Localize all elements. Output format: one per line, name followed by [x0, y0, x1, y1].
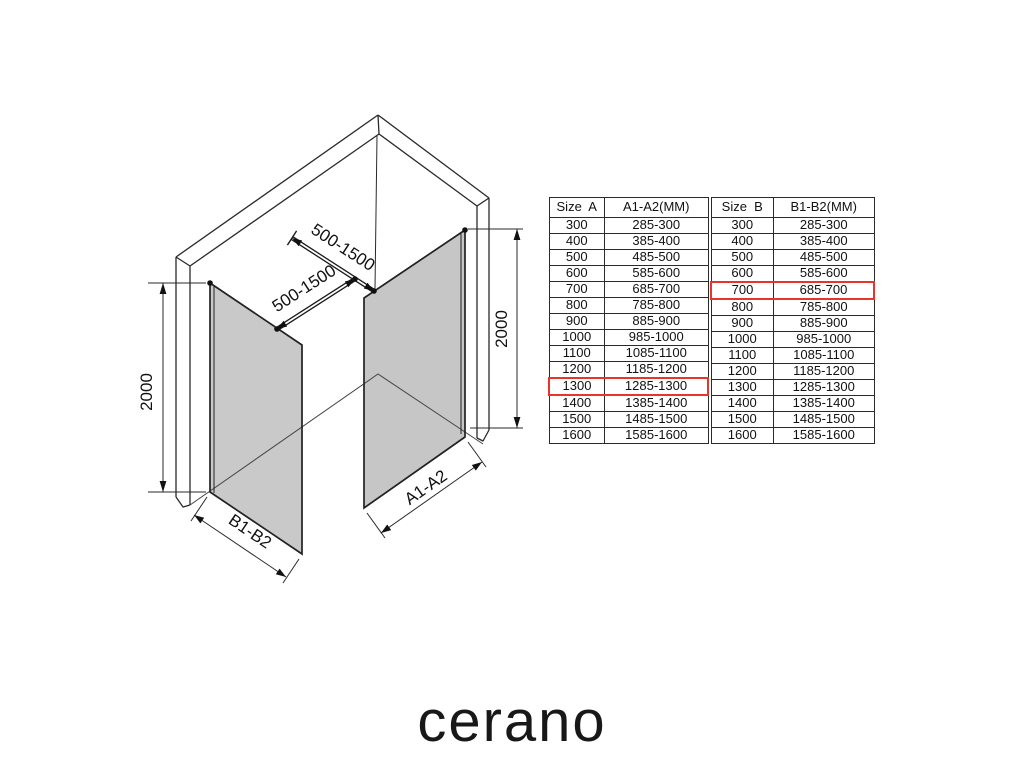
table-cell: 300	[711, 218, 774, 234]
brand-logo: cerano	[0, 688, 1024, 755]
table-row: 700685-700	[549, 282, 708, 298]
table-cell: 685-700	[605, 282, 709, 298]
table-cell: 885-900	[774, 316, 875, 332]
table-cell: 1485-1500	[774, 412, 875, 428]
table-cell: 285-300	[774, 218, 875, 234]
table-cell: 1500	[711, 412, 774, 428]
table-cell: 785-800	[605, 298, 709, 314]
table-row: 14001385-1400	[711, 396, 874, 412]
column-header: B1-B2(MM)	[774, 198, 875, 218]
table-cell: 1085-1100	[605, 346, 709, 362]
table-cell: 400	[711, 234, 774, 250]
table-row: 12001185-1200	[711, 364, 874, 380]
table-row: 400385-400	[549, 234, 708, 250]
table-cell: 800	[549, 298, 605, 314]
table-row: 900885-900	[711, 316, 874, 332]
table-cell: 385-400	[605, 234, 709, 250]
table-cell: 985-1000	[774, 332, 875, 348]
table-cell: 300	[549, 218, 605, 234]
table-cell: 585-600	[605, 266, 709, 282]
table-cell: 1600	[711, 428, 774, 444]
table-cell: 1285-1300	[605, 378, 709, 395]
table-cell: 600	[711, 266, 774, 283]
size-a-table: Size AA1-A2(MM)300285-300400385-40050048…	[548, 197, 709, 444]
table-cell: 400	[549, 234, 605, 250]
table-cell: 1300	[711, 380, 774, 396]
table-cell: 1600	[549, 428, 605, 444]
table-row: 11001085-1100	[549, 346, 708, 362]
table-row: 300285-300	[711, 218, 874, 234]
table-row: 12001185-1200	[549, 362, 708, 379]
table-cell: 1300	[549, 378, 605, 395]
column-header: Size A	[549, 198, 605, 218]
table-cell: 785-800	[774, 299, 875, 316]
table-row: 13001285-1300	[711, 380, 874, 396]
table-row: 14001385-1400	[549, 395, 708, 412]
table-row-highlighted: 700685-700	[711, 282, 874, 299]
glass-panel-a	[364, 230, 465, 508]
table-cell: 1485-1500	[605, 412, 709, 428]
table-cell: 1100	[711, 348, 774, 364]
height-label-left: 2000	[137, 373, 156, 411]
bar-b-length-label: 500-1500	[269, 261, 340, 316]
header-row: Size BB1-B2(MM)	[711, 198, 874, 218]
table-row: 16001585-1600	[711, 428, 874, 444]
table-row: 1000985-1000	[711, 332, 874, 348]
glass-panels	[210, 230, 465, 554]
table-row: 600585-600	[549, 266, 708, 282]
table-cell: 500	[711, 250, 774, 266]
table-cell: 1585-1600	[605, 428, 709, 444]
header-row: Size AA1-A2(MM)	[549, 198, 708, 218]
table-cell: 385-400	[774, 234, 875, 250]
table-row: 300285-300	[549, 218, 708, 234]
table-row: 15001485-1500	[711, 412, 874, 428]
table-cell: 585-600	[774, 266, 875, 283]
table-cell: 1585-1600	[774, 428, 875, 444]
size-b-table: Size BB1-B2(MM)300285-300400385-40050048…	[710, 197, 875, 444]
table-cell: 700	[711, 282, 774, 299]
table-cell: 600	[549, 266, 605, 282]
table-row: 1000985-1000	[549, 330, 708, 346]
table-cell: 1000	[711, 332, 774, 348]
table-cell: 800	[711, 299, 774, 316]
height-dimension-left	[148, 283, 206, 492]
table-row: 500485-500	[549, 250, 708, 266]
table-cell: 1285-1300	[774, 380, 875, 396]
height-label-right: 2000	[492, 310, 511, 348]
table-row: 900885-900	[549, 314, 708, 330]
table-cell: 1085-1100	[774, 348, 875, 364]
table-cell: 485-500	[774, 250, 875, 266]
table-cell: 1185-1200	[774, 364, 875, 380]
table-cell: 500	[549, 250, 605, 266]
table-row: 15001485-1500	[549, 412, 708, 428]
table-cell: 1185-1200	[605, 362, 709, 379]
table-cell: 1400	[549, 395, 605, 412]
table-cell: 700	[549, 282, 605, 298]
column-header: Size B	[711, 198, 774, 218]
column-header: A1-A2(MM)	[605, 198, 709, 218]
table-cell: 1000	[549, 330, 605, 346]
table-cell: 485-500	[605, 250, 709, 266]
table-row: 600585-600	[711, 266, 874, 283]
table-row-highlighted: 13001285-1300	[549, 378, 708, 395]
table-cell: 900	[549, 314, 605, 330]
table-cell: 1200	[549, 362, 605, 379]
table-cell: 885-900	[605, 314, 709, 330]
table-cell: 285-300	[605, 218, 709, 234]
table-cell: 1200	[711, 364, 774, 380]
table-row: 16001585-1600	[549, 428, 708, 444]
table-cell: 685-700	[774, 282, 875, 299]
table-row: 11001085-1100	[711, 348, 874, 364]
table-row: 500485-500	[711, 250, 874, 266]
table-cell: 1400	[711, 396, 774, 412]
table-row: 800785-800	[711, 299, 874, 316]
table-row: 800785-800	[549, 298, 708, 314]
table-cell: 900	[711, 316, 774, 332]
table-row: 400385-400	[711, 234, 874, 250]
table-cell: 1100	[549, 346, 605, 362]
table-cell: 985-1000	[605, 330, 709, 346]
table-cell: 1385-1400	[774, 396, 875, 412]
table-cell: 1385-1400	[605, 395, 709, 412]
table-cell: 1500	[549, 412, 605, 428]
